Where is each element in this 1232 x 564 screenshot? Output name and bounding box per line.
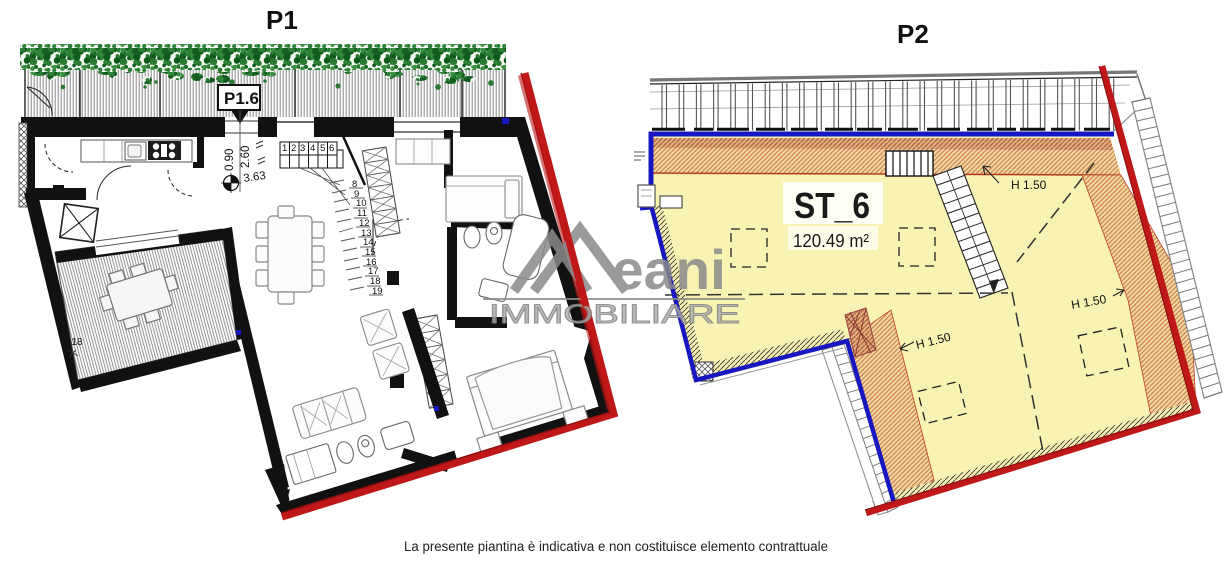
svg-text:6: 6: [329, 143, 334, 154]
svg-text:5: 5: [320, 143, 325, 154]
svg-text:P1.6: P1.6: [224, 89, 259, 108]
svg-text:H 1.50: H 1.50: [1011, 178, 1047, 192]
svg-text:P1: P1: [266, 5, 298, 35]
svg-text:IMMOBILIARE: IMMOBILIARE: [489, 299, 740, 329]
svg-text:eani: eani: [612, 238, 726, 301]
svg-text:ST_6: ST_6: [794, 185, 870, 226]
svg-text:4: 4: [310, 143, 315, 154]
svg-text:P2: P2: [897, 19, 929, 49]
svg-text:120.49 m²: 120.49 m²: [793, 230, 869, 251]
svg-text:3: 3: [300, 143, 305, 154]
svg-text:La presente piantina è indi: La presente piantina è indicativa e non …: [404, 539, 828, 554]
svg-text:2: 2: [291, 143, 296, 154]
svg-text:2.60: 2.60: [240, 146, 252, 168]
svg-text:0.18: 0.18: [63, 337, 83, 348]
svg-text:1: 1: [282, 143, 287, 154]
svg-text:0.90: 0.90: [224, 149, 236, 171]
